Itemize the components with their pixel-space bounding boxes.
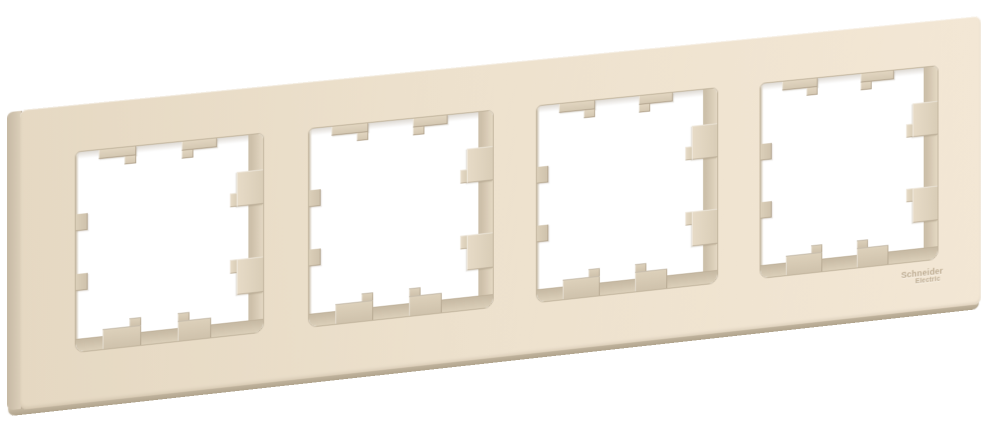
tab-step-nub <box>906 188 912 202</box>
clip-tab-right-upper <box>692 123 717 160</box>
tab-step-nub <box>857 239 868 248</box>
frame-window-1 <box>75 133 264 353</box>
inner-wall-right <box>924 66 938 260</box>
product-photo: Schneider Electric <box>0 0 1000 433</box>
clip-tab-left-upper <box>76 213 88 231</box>
tab-step-nub <box>806 87 817 96</box>
inner-wall-left <box>537 106 540 290</box>
clip-tab-top-right <box>861 71 894 83</box>
clip-tab-right-lower <box>467 232 493 270</box>
tab-step-nub <box>639 104 650 113</box>
tab-step-nub <box>635 263 646 272</box>
clip-tab-bottom-left <box>335 300 373 324</box>
clip-tab-top-left <box>331 123 368 136</box>
clip-tab-top-right <box>413 115 448 127</box>
tab-step-nub <box>584 109 595 118</box>
tab-step-nub <box>362 292 374 301</box>
clip-tab-right-upper <box>913 101 938 137</box>
inner-wall-right <box>478 111 492 309</box>
clip-tab-left-lower <box>309 248 321 266</box>
clip-tab-left-lower <box>761 201 772 219</box>
window-opening <box>75 133 264 353</box>
tab-step-nub <box>409 287 421 296</box>
frame-face: Schneider Electric <box>20 16 981 410</box>
tab-step-nub <box>460 169 467 183</box>
clip-tab-top-right <box>182 138 217 150</box>
tab-step-nub <box>460 235 467 249</box>
window-opening <box>308 110 494 328</box>
clip-tab-bottom-right <box>409 293 442 316</box>
tab-step-nub <box>178 312 190 321</box>
clip-tab-right-upper <box>467 146 493 183</box>
clip-tab-left-lower <box>537 225 548 243</box>
tab-step-nub <box>129 317 141 326</box>
tab-step-nub <box>685 211 692 225</box>
clip-tab-right-upper <box>237 169 263 206</box>
inner-wall-right <box>248 134 263 334</box>
tab-step-nub <box>230 259 237 274</box>
wall-frame: Schneider Electric <box>20 16 981 410</box>
inner-wall-left <box>309 129 312 315</box>
frame-window-2 <box>308 110 494 328</box>
tab-step-nub <box>124 155 136 164</box>
clip-tab-bottom-right <box>857 245 889 268</box>
clip-tab-left-upper <box>761 143 772 161</box>
clip-tab-right-lower <box>913 186 938 223</box>
clip-tab-top-left <box>99 146 137 159</box>
window-opening <box>536 87 718 303</box>
clip-tab-bottom-left <box>786 252 822 275</box>
frame-window-3 <box>536 87 718 303</box>
inner-wall-left <box>761 84 764 267</box>
schneider-electric-logo: Schneider Electric <box>889 267 943 289</box>
tab-step-nub <box>588 268 599 277</box>
clip-tab-left-lower <box>76 273 88 291</box>
tab-step-nub <box>413 126 425 135</box>
tab-step-nub <box>357 132 369 141</box>
tab-step-nub <box>182 150 194 159</box>
clip-tab-right-lower <box>237 256 263 294</box>
clip-tab-bottom-left <box>103 325 142 349</box>
clip-tab-top-left <box>782 78 818 90</box>
tab-step-nub <box>811 244 822 253</box>
inner-wall-left <box>76 152 79 340</box>
clip-tab-left-upper <box>537 166 548 184</box>
tab-step-nub <box>906 124 912 138</box>
clip-tab-left-upper <box>309 189 321 207</box>
frame-window-4 <box>760 65 939 279</box>
clip-tab-bottom-left <box>563 276 600 300</box>
clip-tab-bottom-right <box>178 317 211 340</box>
inner-wall-right <box>703 88 717 284</box>
window-opening <box>760 65 939 279</box>
tab-step-nub <box>861 82 872 91</box>
clip-tab-bottom-right <box>635 269 667 292</box>
clip-tab-right-lower <box>692 209 717 247</box>
tab-step-nub <box>230 193 237 208</box>
clip-tab-top-left <box>559 100 595 112</box>
tab-step-nub <box>685 146 692 160</box>
clip-tab-top-right <box>639 93 673 105</box>
